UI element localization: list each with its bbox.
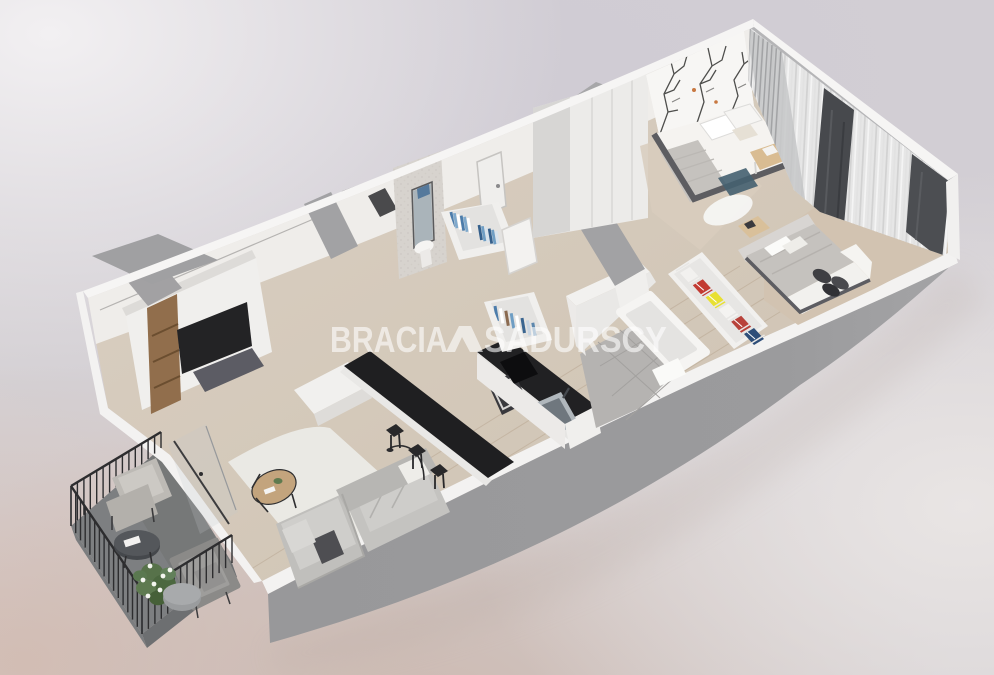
svg-text:SADURSCY: SADURSCY	[484, 321, 667, 361]
svg-text:BRACIA: BRACIA	[330, 321, 448, 361]
